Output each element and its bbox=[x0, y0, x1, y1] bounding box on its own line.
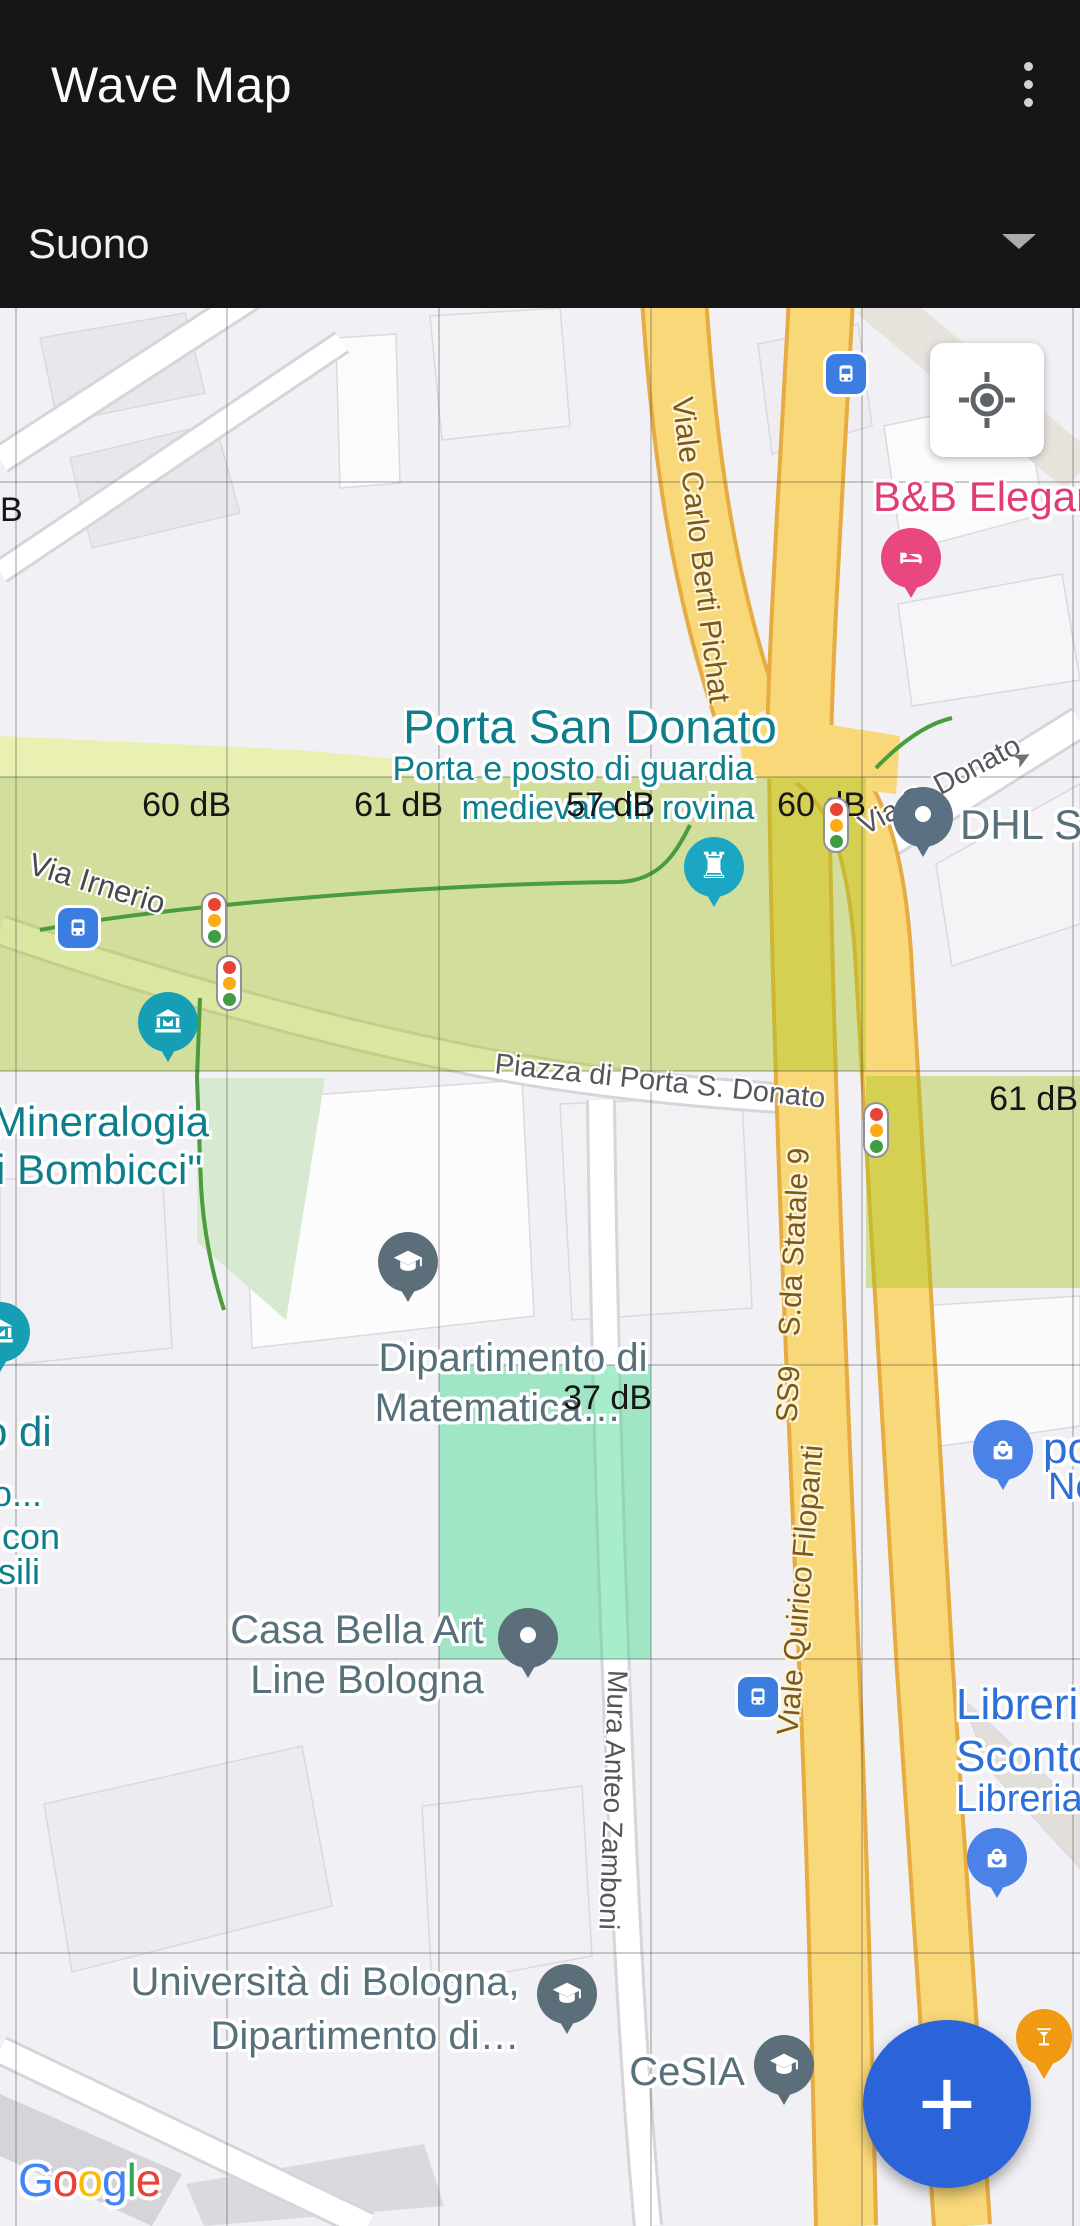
google-attribution: Google bbox=[18, 2153, 160, 2207]
poi-label-libreria-1: Libreria bbox=[956, 1680, 1080, 1730]
pin-tail bbox=[553, 2010, 581, 2034]
pin-tail bbox=[514, 1654, 542, 1678]
app-title: Wave Map bbox=[51, 56, 292, 114]
pin-tail bbox=[983, 1874, 1011, 1898]
traffic-light-icon bbox=[823, 797, 849, 853]
pin-hole bbox=[520, 1627, 536, 1643]
rook-icon: ♜ bbox=[698, 849, 730, 885]
road-label-ss9: SS9 bbox=[771, 1365, 808, 1423]
google-letter: G bbox=[18, 2154, 53, 2206]
poi-label-museo-cut-2: o... bbox=[0, 1473, 42, 1515]
poi-label-casa-1: Casa Bella Art bbox=[230, 1608, 483, 1653]
casa-bella-pin[interactable] bbox=[498, 1608, 558, 1668]
poi-label-universita-1: Università di Bologna, bbox=[130, 1960, 519, 2005]
university-pin-cesia[interactable] bbox=[754, 2035, 814, 2095]
db-label: 60 dB bbox=[142, 786, 231, 825]
pin-tail bbox=[909, 833, 937, 857]
graduation-cap-icon bbox=[391, 1245, 425, 1279]
google-letter: g bbox=[102, 2154, 127, 2206]
traffic-light-icon bbox=[201, 892, 227, 948]
museum-pin[interactable] bbox=[138, 992, 198, 1052]
google-letter: o bbox=[77, 2154, 102, 2206]
pin-tail bbox=[154, 1038, 182, 1062]
google-letter: e bbox=[136, 2154, 161, 2206]
plus-icon: + bbox=[918, 2048, 976, 2160]
db-label: B bbox=[0, 491, 23, 530]
hotel-pin[interactable] bbox=[881, 528, 941, 588]
poi-label-libreria-2: Sconto bbox=[956, 1732, 1080, 1782]
google-letter: l bbox=[127, 2154, 136, 2206]
caret-down-icon bbox=[1002, 234, 1036, 249]
poi-label-porta-sub1: Porta e posto di guardia bbox=[392, 750, 753, 789]
poi-label-dipartimento-1: Dipartimento di bbox=[378, 1336, 647, 1381]
pin-hole bbox=[915, 806, 931, 822]
bed-icon bbox=[895, 542, 927, 574]
poi-label-museo-cut-1: o di bbox=[0, 1408, 52, 1456]
museum-icon bbox=[151, 1005, 185, 1039]
university-pin-matematica[interactable] bbox=[378, 1232, 438, 1292]
map-canvas[interactable]: Viale Carlo Berti Pichat Via S. Donato ➤… bbox=[0, 308, 1080, 2226]
bus-glyph bbox=[65, 915, 91, 941]
university-pin-unibo[interactable] bbox=[537, 1964, 597, 2024]
poi-label-mineralogia-1: Mineralogia bbox=[0, 1098, 209, 1146]
poi-label-universita-2: Dipartimento di… bbox=[210, 2014, 519, 2059]
pin-tail bbox=[770, 2081, 798, 2105]
bus-stop-icon[interactable] bbox=[738, 1677, 778, 1717]
db-label: 37 dB bbox=[563, 1379, 652, 1418]
poi-label-dhl: DHL ST bbox=[960, 801, 1080, 849]
graduation-cap-icon bbox=[767, 2048, 801, 2082]
shopping-pin[interactable] bbox=[973, 1420, 1033, 1480]
kebab-dot bbox=[1024, 98, 1033, 107]
poi-label-museo-cut-4: sili bbox=[0, 1551, 40, 1593]
pin-tail bbox=[989, 1466, 1017, 1490]
bus-glyph bbox=[833, 361, 859, 387]
bus-stop-icon[interactable] bbox=[58, 908, 98, 948]
bus-stop-icon[interactable] bbox=[826, 354, 866, 394]
poi-label-mineralogia-2: i Bombicci" bbox=[0, 1146, 202, 1194]
add-measurement-fab[interactable]: + bbox=[863, 2020, 1031, 2188]
pin-tail bbox=[897, 574, 925, 598]
traffic-light-icon bbox=[863, 1102, 889, 1158]
poi-label-cesia: CeSIA bbox=[629, 2050, 745, 2095]
layer-select[interactable]: Suono bbox=[0, 198, 1080, 284]
cocktail-pin[interactable] bbox=[1016, 2009, 1072, 2065]
bus-glyph bbox=[745, 1684, 771, 1710]
pin-tail bbox=[0, 1348, 14, 1372]
traffic-light-icon bbox=[216, 955, 242, 1011]
db-label: 57 dB bbox=[566, 786, 655, 825]
pin-tail bbox=[394, 1278, 422, 1302]
layer-select-value: Suono bbox=[28, 220, 149, 268]
shopping-bag-icon bbox=[987, 1434, 1019, 1466]
shopping-bag-icon bbox=[981, 1842, 1013, 1874]
app-bar: Wave Map Suono bbox=[0, 0, 1080, 308]
google-letter: o bbox=[53, 2154, 78, 2206]
pin-tail bbox=[1030, 2055, 1058, 2079]
libreria-pin[interactable] bbox=[967, 1828, 1027, 1888]
db-label: 61 dB bbox=[354, 786, 443, 825]
museum-icon bbox=[0, 1315, 17, 1349]
db-label: 60 dB bbox=[777, 786, 866, 825]
dhl-pin[interactable] bbox=[893, 787, 953, 847]
crosshair-icon bbox=[955, 368, 1019, 432]
poi-label-casa-2: Line Bologna bbox=[250, 1658, 484, 1703]
db-label: 61 dB bbox=[989, 1080, 1078, 1119]
kebab-dot bbox=[1024, 80, 1033, 89]
kebab-dot bbox=[1024, 62, 1033, 71]
porta-tower-pin[interactable]: ♜ bbox=[684, 837, 744, 897]
martini-icon bbox=[1029, 2022, 1059, 2052]
my-location-button[interactable] bbox=[930, 343, 1044, 457]
graduation-cap-icon bbox=[550, 1977, 584, 2011]
phone-screen: Wave Map Suono bbox=[0, 0, 1080, 2226]
poi-label-bnb: B&B Elegan bbox=[873, 473, 1080, 521]
poi-label-shop-cut-2: Ne bbox=[1048, 1466, 1080, 1509]
poi-label-porta-san-donato: Porta San Donato bbox=[403, 699, 777, 754]
poi-label-libreria-3: Libreria bbox=[956, 1778, 1080, 1821]
kebab-menu-icon[interactable] bbox=[1008, 52, 1048, 116]
